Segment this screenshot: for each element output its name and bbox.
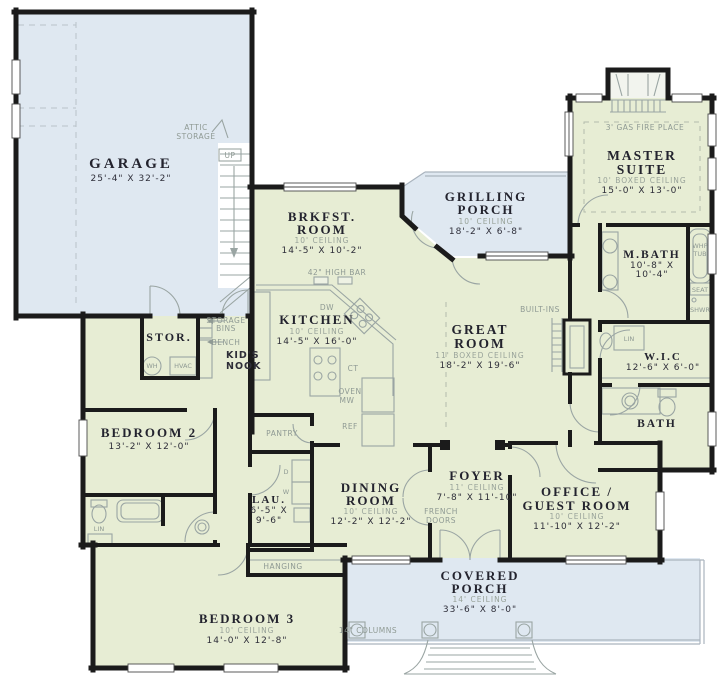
- whp-tub-label2: TUB: [692, 250, 706, 258]
- grilling-porch-ceiling: 10' CEILING: [459, 217, 514, 226]
- ref-label: REF: [342, 422, 358, 431]
- bedroom2-dims: 13'-2" X 12'-0": [109, 442, 190, 452]
- master-suite-ceiling: 10' BOXED CEILING: [597, 176, 686, 185]
- window: [12, 60, 20, 94]
- foyer-dims: 7'-8" X 11'-10": [437, 493, 518, 503]
- kitchen-label: KITCHEN: [279, 312, 354, 327]
- master-suite-label: MASTER: [607, 148, 677, 163]
- foyer-label: FOYER: [449, 468, 505, 483]
- great-room-ceiling: 11' BOXED CEILING: [435, 351, 524, 360]
- laundry-label: LAU.: [252, 494, 286, 506]
- storage-bins-label2: BINS: [216, 324, 236, 333]
- garage-label: GARAGE: [89, 156, 173, 172]
- front-steps: [404, 640, 556, 674]
- seat-label: SEAT: [692, 286, 708, 294]
- window: [566, 556, 626, 564]
- bedroom2-label: BEDROOM 2: [101, 425, 197, 440]
- brkfst-ceiling: 10' CEILING: [295, 236, 350, 245]
- kitchen-dims: 14'-5" X 16'-0": [277, 337, 358, 347]
- bath-label: BATH: [637, 418, 677, 430]
- bar-stool: [314, 277, 328, 284]
- french-doors-label2: DOORS: [426, 516, 456, 525]
- wic-dims: 12'-6" X 6'-0": [626, 363, 700, 373]
- shwr-label: SHWR: [690, 306, 710, 314]
- washer-label: W: [283, 488, 290, 496]
- window: [708, 412, 716, 446]
- high-bar-label: 42" HIGH BAR: [308, 268, 367, 277]
- gas-fireplace-label: 3' GAS FIRE PLACE: [606, 123, 685, 132]
- bedroom3-label: BEDROOM 3: [199, 611, 295, 626]
- wic-label: W.I.C: [644, 351, 682, 363]
- window: [656, 492, 664, 530]
- window: [486, 252, 548, 260]
- columns-label: 14" COLUMNS: [339, 626, 397, 635]
- bedroom3-ceiling: 10' CEILING: [220, 626, 275, 635]
- mbath-label: M.BATH: [623, 249, 680, 261]
- office-dims: 11'-10" X 12'-2": [533, 522, 621, 532]
- window: [284, 183, 356, 191]
- office-label2: GUEST ROOM: [523, 498, 632, 513]
- window: [12, 104, 20, 138]
- french-doors-label: FRENCH: [424, 507, 458, 516]
- attic-storage-label2: STORAGE: [176, 132, 215, 141]
- great-room-label2: ROOM: [454, 336, 506, 351]
- kids-nook-label2: NOOK: [226, 361, 261, 372]
- brkfst-label2: ROOM: [297, 222, 347, 237]
- lin-label-bath: LIN: [94, 525, 105, 533]
- office-label: OFFICE /: [541, 484, 613, 499]
- kids-nook-label: KID'S: [226, 350, 260, 361]
- great-room-dims: 18'-2" X 19'-6": [440, 361, 521, 371]
- stor-label: STOR.: [146, 330, 191, 344]
- kitchen-ceiling: 10' CEILING: [290, 327, 345, 336]
- pantry-label: PANTRY: [266, 429, 298, 438]
- lin-label-wic: LIN: [624, 335, 635, 343]
- dining-label2: ROOM: [346, 493, 396, 508]
- grilling-porch-label2: PORCH: [458, 202, 515, 217]
- window: [672, 94, 702, 102]
- floor-plan-canvas: GARAGE 25'-4" X 32'-2" ATTIC STORAGE UP …: [0, 0, 725, 682]
- covered-porch-dims: 33'-6" X 8'-0": [443, 605, 517, 615]
- master-suite-dims: 15'-0" X 13'-0": [602, 186, 683, 196]
- hvac-label: HVAC: [174, 362, 192, 370]
- opening-post: [440, 440, 450, 450]
- brkfst-dims: 14'-5" X 10'-2": [282, 246, 363, 256]
- dining-ceiling: 10' CEILING: [344, 507, 399, 516]
- laundry-dims1: 6'-5" X: [250, 506, 287, 516]
- grilling-porch-dims: 18'-2" X 6'-8": [449, 227, 523, 237]
- fireplace-bump: [608, 70, 668, 98]
- great-room-label: GREAT: [451, 322, 508, 337]
- whp-tub-label: WHP: [692, 242, 707, 250]
- oven-label: OVEN: [338, 387, 361, 396]
- dining-dims: 12'-2" X 12'-2": [331, 517, 412, 527]
- covered-porch-label2: PORCH: [452, 581, 509, 596]
- window: [224, 664, 278, 672]
- window: [708, 158, 716, 190]
- covered-porch-ceiling: 14' CEILING: [453, 595, 508, 604]
- bar-stool: [338, 277, 352, 284]
- window: [708, 114, 716, 146]
- dryer-label: D: [283, 468, 288, 476]
- stairs-up-label: UP: [224, 151, 235, 160]
- window: [352, 556, 410, 564]
- ct-label: CT: [348, 364, 359, 373]
- builtins-label: BUILT-INS: [520, 305, 560, 314]
- covered-porch-floor: [345, 558, 700, 642]
- window: [565, 112, 573, 156]
- bench-label: BENCH: [212, 338, 241, 347]
- mw-label: MW: [340, 396, 355, 405]
- opening-post: [495, 440, 505, 450]
- bedroom3-dims: 14'-0" X 12'-8": [207, 636, 288, 646]
- floor-plan-page: GARAGE 25'-4" X 32'-2" ATTIC STORAGE UP …: [0, 0, 725, 682]
- foyer-ceiling: 11' CEILING: [450, 483, 505, 492]
- office-ceiling: 10' CEILING: [550, 512, 605, 521]
- window: [708, 234, 716, 274]
- dw-label: DW: [320, 303, 334, 312]
- wh-label: WH: [146, 362, 157, 370]
- mbath-dims2: 10'-4": [635, 270, 668, 280]
- window: [79, 420, 87, 456]
- laundry-dims2: 9'-6": [256, 516, 282, 526]
- window: [128, 664, 174, 672]
- master-suite-label2: SUITE: [617, 162, 668, 177]
- garage-dims: 25'-4" X 32'-2": [91, 174, 172, 184]
- attic-storage-label: ATTIC: [184, 123, 208, 132]
- window: [576, 94, 602, 102]
- hanging-label: HANGING: [263, 562, 302, 571]
